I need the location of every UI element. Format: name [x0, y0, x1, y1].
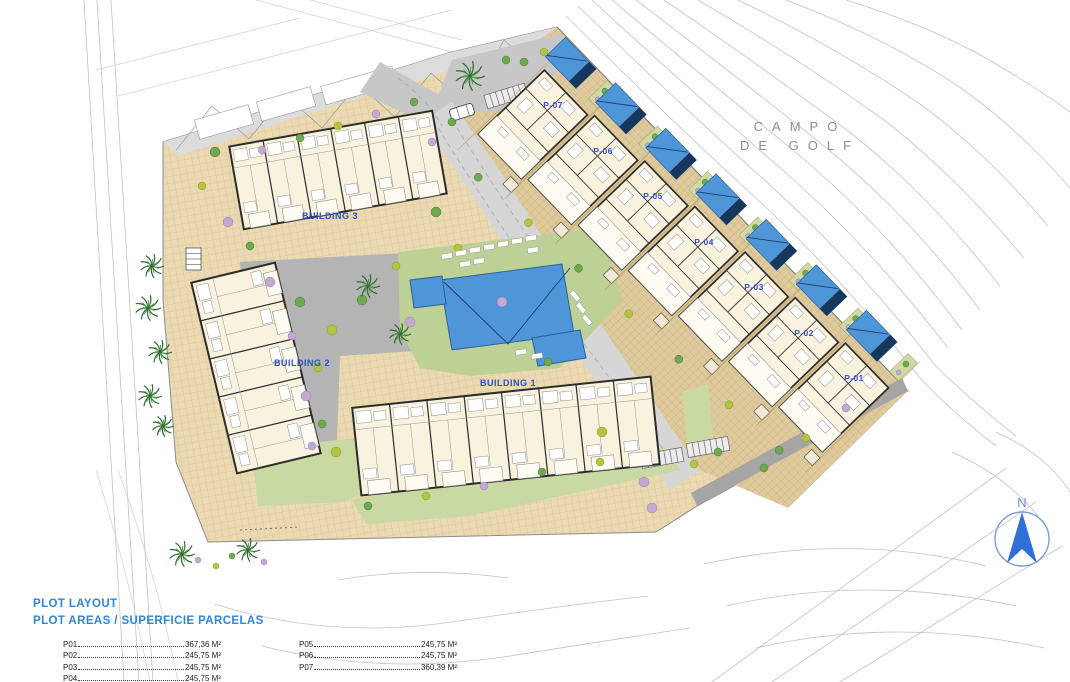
- building-2-label: BUILDING 2: [274, 358, 330, 368]
- shrub: [392, 262, 400, 270]
- golf-course-label-line1: CAMPO: [754, 119, 847, 134]
- legend-subtitle: PLOT AREAS / SUPERFICIE PARCELAS: [33, 613, 457, 630]
- shrub: [639, 477, 649, 487]
- shrub: [265, 277, 275, 287]
- shrub: [448, 118, 456, 126]
- plot-label-p05: P-05: [643, 191, 663, 201]
- shrub: [261, 559, 267, 565]
- legend-row: P06245,75 M²: [299, 649, 457, 661]
- shrub: [195, 557, 201, 563]
- shrub: [246, 242, 254, 250]
- shrub: [544, 358, 552, 366]
- shrub: [520, 58, 528, 66]
- plot-label-p06: P-06: [593, 146, 613, 156]
- dotted-leader: [78, 646, 184, 647]
- legend-row: P05245,75 M²: [299, 637, 457, 649]
- plot-label-p03: P-03: [744, 282, 764, 292]
- shrub: [802, 434, 810, 442]
- legend-row: P04245,75 M²: [63, 672, 221, 682]
- shrub: [647, 503, 657, 513]
- palm-tree: [170, 541, 195, 567]
- legend-row: P02245,75 M²: [63, 649, 221, 661]
- shrub: [210, 147, 220, 157]
- plot-label-p01: P-01: [844, 373, 864, 383]
- shrub: [229, 553, 235, 559]
- dotted-leader: [314, 646, 420, 647]
- shrub: [497, 297, 507, 307]
- plot-label-p04: P-04: [694, 237, 714, 247]
- shrub: [422, 492, 430, 500]
- palm-tree: [153, 415, 174, 437]
- legend-row: P01367,36 M²: [63, 637, 221, 649]
- shrub: [213, 563, 219, 569]
- north-arrow-pointer: [1007, 512, 1037, 563]
- shrub: [288, 332, 296, 340]
- shrub: [327, 325, 337, 335]
- shrub: [364, 502, 372, 510]
- shrub: [480, 482, 488, 490]
- shrub: [714, 448, 722, 456]
- shrub: [318, 420, 326, 428]
- shrub: [842, 404, 850, 412]
- shrub: [357, 295, 367, 305]
- legend: PLOT LAYOUT PLOT AREAS / SUPERFICIE PARC…: [33, 596, 457, 682]
- shrub: [405, 317, 415, 327]
- stairs-icon: [186, 248, 201, 270]
- dotted-leader: [78, 680, 184, 681]
- shrub: [597, 427, 607, 437]
- shrub: [760, 464, 768, 472]
- shrub: [331, 447, 341, 457]
- palm-tree: [139, 384, 162, 408]
- dotted-leader: [314, 657, 420, 658]
- legend-row: P07360,39 M²: [299, 660, 457, 672]
- dotted-leader: [78, 657, 184, 658]
- side-pool-left: [410, 276, 446, 308]
- north-label: N: [1017, 495, 1026, 510]
- north-arrow: N: [995, 495, 1049, 566]
- shrub: [690, 460, 698, 468]
- legend-row: P03245,75 M²: [63, 660, 221, 672]
- legend-table: P01367,36 M² P02245,75 M² P03245,75 M² P…: [63, 637, 457, 682]
- shrub: [295, 297, 305, 307]
- shrub: [301, 391, 311, 401]
- shrub: [372, 110, 380, 118]
- shrub: [596, 458, 604, 466]
- legend-title: PLOT LAYOUT: [33, 596, 457, 613]
- plot-label-p07: P-07: [543, 100, 563, 110]
- site-plan-canvas: CAMPO DE GOLF BUILDING 3 BUILDING 2 BUIL…: [0, 0, 1070, 682]
- plot-label-p02: P-02: [794, 328, 814, 338]
- shrub: [428, 138, 436, 146]
- dotted-leader: [314, 669, 420, 670]
- golf-course-label-line2: DE GOLF: [740, 138, 860, 153]
- shrub: [223, 217, 233, 227]
- building-1-label: BUILDING 1: [480, 378, 536, 388]
- shrub: [502, 56, 510, 64]
- shrub: [431, 207, 441, 217]
- shrub: [540, 48, 548, 56]
- shrub: [296, 134, 304, 142]
- palm-tree: [141, 254, 164, 278]
- shrub: [308, 442, 316, 450]
- shrub: [334, 122, 342, 130]
- building-3-label: BUILDING 3: [302, 211, 358, 221]
- shrub: [258, 146, 266, 154]
- shrub: [198, 182, 206, 190]
- shrub: [410, 98, 418, 106]
- shrub: [538, 468, 546, 476]
- palm-tree: [136, 295, 161, 321]
- dotted-leader: [78, 669, 184, 670]
- site-plan-page: CAMPO DE GOLF BUILDING 3 BUILDING 2 BUIL…: [0, 0, 1070, 682]
